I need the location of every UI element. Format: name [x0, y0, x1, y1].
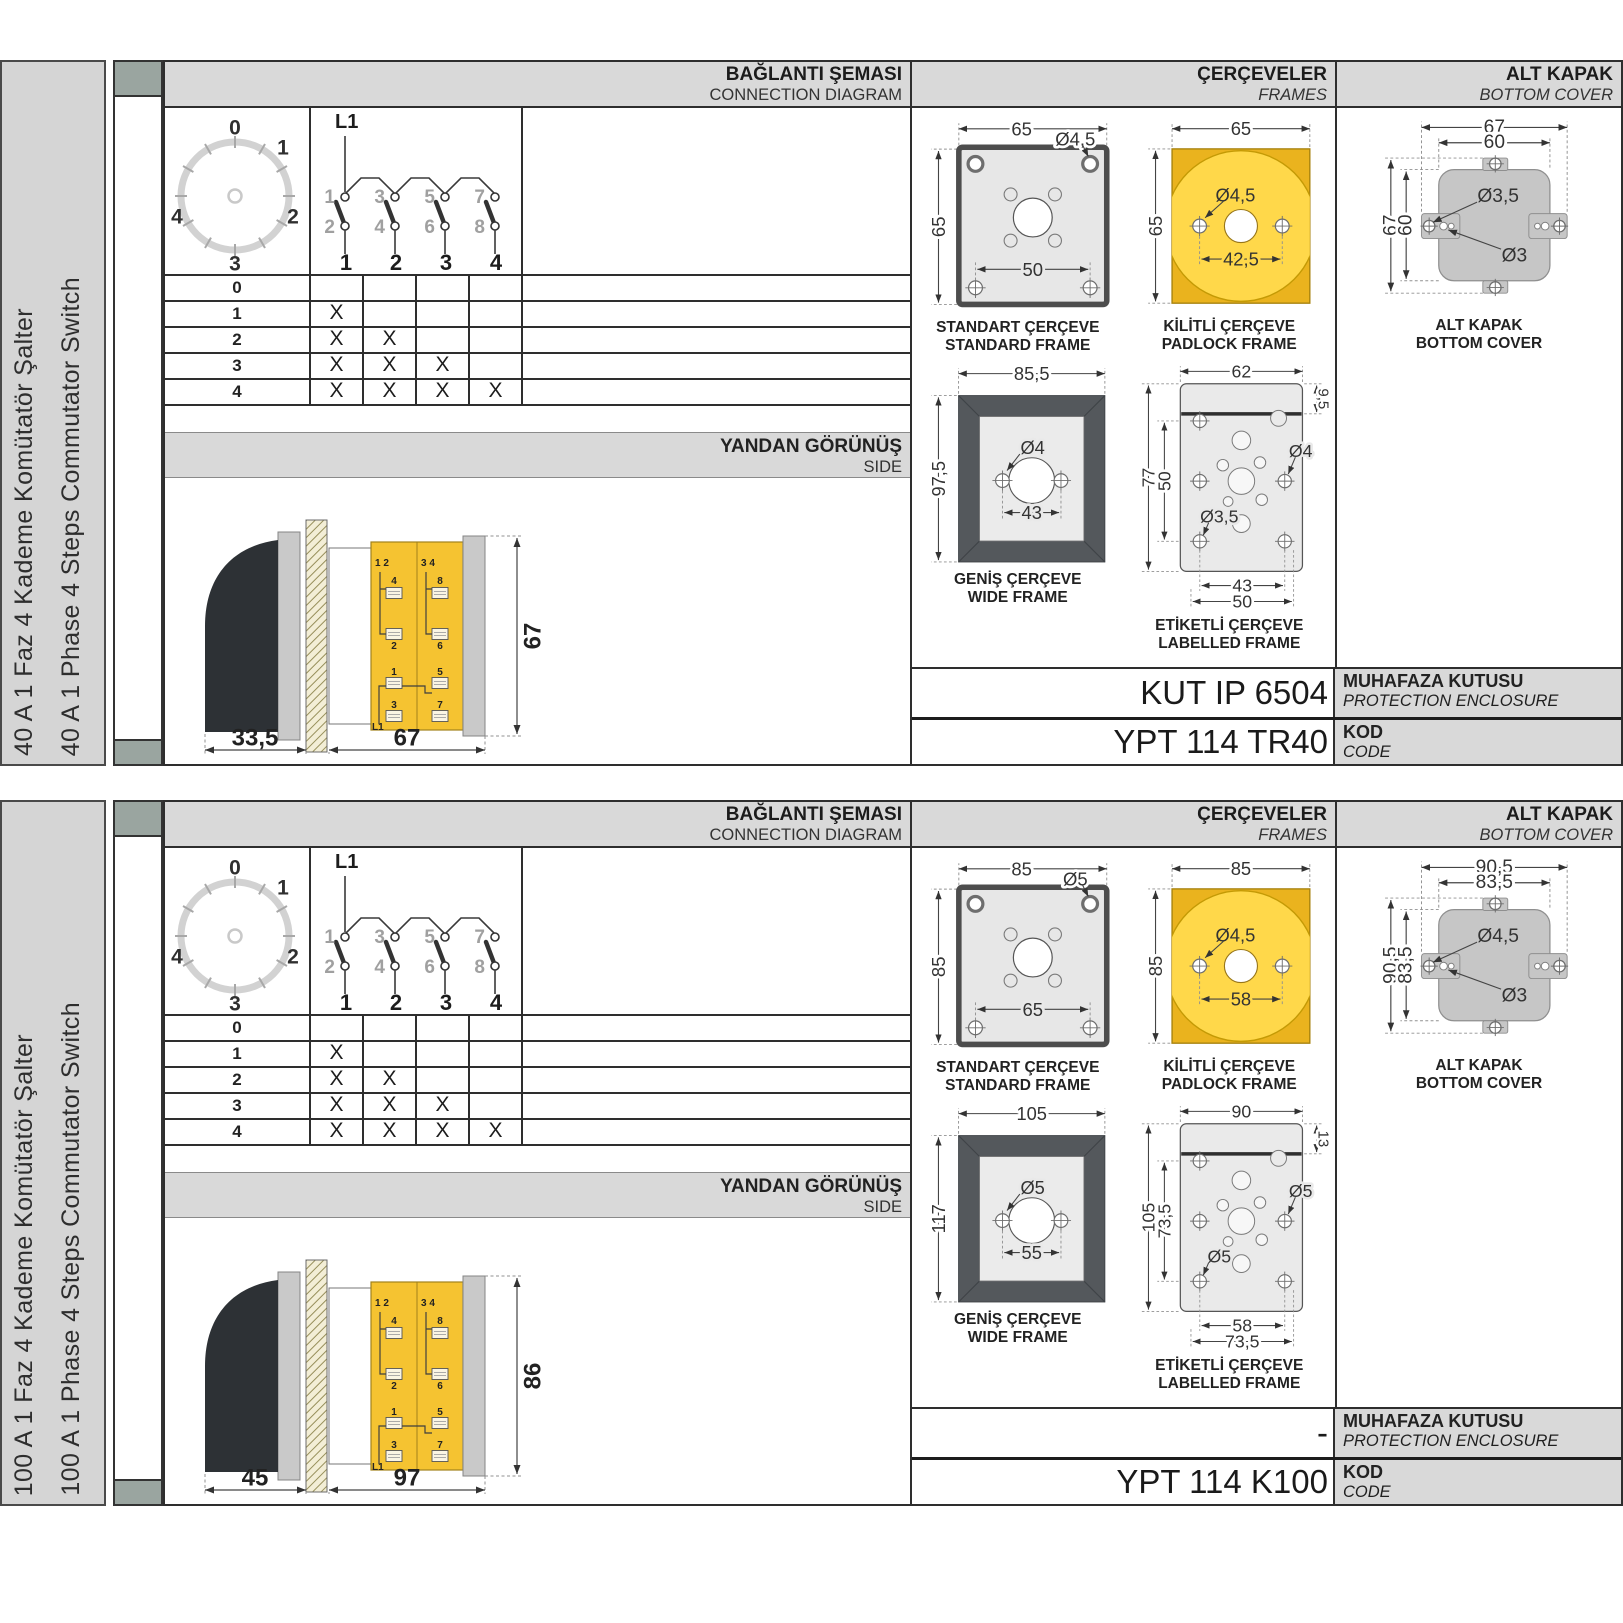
padlock-frame-caption-en: PADLOCK FRAME [1139, 1076, 1319, 1094]
contact-mark [468, 276, 521, 300]
standard-frame-figure: 85 85 Ø5 [920, 850, 1116, 1095]
contact-mark: X [415, 354, 468, 378]
contact-mark: X [309, 1042, 362, 1066]
dim-height: 85 [1145, 956, 1166, 976]
frames-header-tr: ÇERÇEVELER [912, 64, 1327, 86]
contact-mark: X [362, 354, 415, 378]
cover-header-en: BOTTOM COVER [1337, 826, 1613, 845]
dim-hole-dia: Ø4,5 [1216, 184, 1256, 205]
line-label-l1: L1 [372, 722, 384, 733]
switch-neck [329, 1288, 371, 1464]
cover-header-tr: ALT KAPAK [1337, 64, 1613, 86]
dim-width: 105 [1016, 1103, 1046, 1124]
side-view-band-en: SIDE [165, 1198, 902, 1217]
contact-mark: X [309, 354, 362, 378]
contact-diagram-figure: L1 1 3 5 7 [315, 848, 520, 1014]
contact-mark [468, 328, 521, 352]
dim-width: 85 [1231, 858, 1251, 879]
panel-main: BAĞLANTI ŞEMASI CONNECTION DIAGRAM ÇERÇE… [163, 60, 1623, 766]
code-label-tr: KOD [1343, 722, 1617, 743]
bottom-cover-header: ALT KAPAK BOTTOM COVER [1337, 802, 1621, 846]
dim-height-inner: 50 [1155, 471, 1175, 491]
rear-plate [278, 532, 300, 740]
frames-column: 85 85 Ø5 [912, 848, 1337, 1407]
dim-body-depth: 97 [394, 1465, 421, 1492]
terminal-block [386, 1418, 402, 1429]
wide-frame-caption-en: WIDE FRAME [922, 1329, 1114, 1347]
corner-hole [1082, 157, 1097, 172]
terminal-label-7: 7 [437, 1440, 443, 1451]
product-code: YPT 114 TR40 [912, 723, 1333, 761]
contact-mark [309, 1016, 362, 1040]
dim-front-depth: 33,5 [232, 725, 279, 752]
center-hole [1009, 458, 1055, 504]
code-row: YPT 114 TR40 KOD CODE [912, 717, 1621, 764]
table-row: 0 [165, 276, 910, 302]
terminal-label-1: 1 [391, 1407, 397, 1418]
labelled-frame-caption-tr: ETİKETLİ ÇERÇEVE [1129, 617, 1329, 635]
standard-frame-drawing: 85 85 Ø5 [920, 854, 1116, 1059]
contact-mark [468, 1068, 521, 1092]
bottom-cover-drawing: 90,5 83,5 90,5 83,5 [1364, 854, 1594, 1057]
center-hole [1013, 938, 1052, 977]
dial-pos-0: 0 [229, 117, 241, 140]
contact-mark: X [362, 1094, 415, 1118]
figures-row: 65 65 Ø4,5 [912, 108, 1621, 667]
spacer [165, 406, 910, 432]
product-panel: 100 A 1 Faz 4 Kademe Komütatör Şalter 10… [0, 800, 1623, 1506]
end-plate [463, 1276, 485, 1476]
terminal-block [386, 678, 402, 689]
table-row: 1X [165, 1042, 910, 1068]
terminal-label-6: 6 [437, 1381, 443, 1392]
contact-mark: X [362, 380, 415, 404]
diagram-filler [523, 848, 910, 1014]
dim-width: 85 [1011, 858, 1032, 879]
padlock-frame-caption-en: PADLOCK FRAME [1139, 336, 1319, 354]
dim-band: 13 [1315, 1130, 1330, 1147]
contact-mark: X [468, 1120, 521, 1144]
terminal-block [386, 1328, 402, 1339]
contact-mark: X [362, 1068, 415, 1092]
position-label: 4 [165, 380, 309, 404]
contact-mark: X [309, 328, 362, 352]
wide-frame-drawing: 105 117 Ø5 [922, 1099, 1114, 1311]
terminal-5: 5 [424, 927, 435, 948]
figures-row: 85 85 Ø5 [912, 848, 1621, 1407]
dial-cell: 0 1 2 3 4 [165, 848, 311, 1014]
wide-frame-caption-en: WIDE FRAME [922, 589, 1114, 607]
table-filler [521, 1120, 910, 1144]
bottom-cover-caption-tr: ALT KAPAK [1337, 1057, 1621, 1075]
contact-mark [468, 354, 521, 378]
table-filler [521, 380, 910, 404]
labelled-frame-caption-en: LABELLED FRAME [1129, 1375, 1329, 1393]
wide-frame-caption-tr: GENİŞ ÇERÇEVE [922, 571, 1114, 589]
padlock-frame-drawing: 85 85 Ø4,5 [1139, 854, 1319, 1058]
table-row: 3XXX [165, 1094, 910, 1120]
contact-mark [362, 276, 415, 300]
labelled-frame-caption-en: LABELLED FRAME [1129, 635, 1329, 653]
terminal-label-4: 4 [391, 576, 397, 587]
contact-mark [415, 1042, 468, 1066]
table-filler [521, 328, 910, 352]
bottom-cover-column: 90,5 83,5 90,5 83,5 [1337, 848, 1621, 1407]
terminal-6: 6 [424, 957, 435, 978]
position-label: 3 [165, 1094, 309, 1118]
contact-mark [468, 1016, 521, 1040]
wide-frame-figure: 105 117 Ø5 [922, 1095, 1114, 1393]
dial-pos-3: 3 [229, 253, 241, 275]
dim-pitch-2: 73,5 [1225, 1331, 1260, 1351]
bus-link [345, 178, 495, 194]
contact-mark: X [309, 380, 362, 404]
table-row: 3XXX [165, 354, 910, 380]
panel-content: 0 1 2 3 4 L1 [165, 108, 1621, 764]
section-header-row: BAĞLANTI ŞEMASI CONNECTION DIAGRAM ÇERÇE… [165, 802, 1621, 848]
terminal-8: 8 [474, 217, 485, 238]
left-title-sidebar: 100 A 1 Faz 4 Kademe Komütatör Şalter 10… [0, 800, 106, 1506]
terminal-label-3: 3 [391, 700, 397, 711]
table-row: 2XX [165, 1068, 910, 1094]
terminal-3: 3 [374, 187, 385, 208]
contact-mark: X [468, 380, 521, 404]
catalog-page: 40 A 1 Faz 4 Kademe Komütatör Şalter 40 … [0, 0, 1623, 1506]
wire-label-12: 1 2 [375, 1298, 389, 1309]
wire-label-34: 3 4 [421, 558, 435, 569]
padlock-frame-caption-tr: KİLİTLİ ÇERÇEVE [1139, 1058, 1319, 1076]
dim-hole-2: Ø3 [1502, 245, 1528, 266]
dim-width: 62 [1232, 361, 1252, 381]
standard-frame-caption-tr: STANDART ÇERÇEVE [920, 1059, 1116, 1077]
terminal-label-4: 4 [391, 1316, 397, 1327]
dim-hole-pitch: 58 [1231, 989, 1251, 1010]
table-filler [521, 276, 910, 300]
contact-mark: X [362, 1120, 415, 1144]
center-hole [1225, 950, 1258, 983]
terminal-label-2: 2 [391, 1381, 397, 1392]
contact-mark [415, 1016, 468, 1040]
spine-marker-top [115, 60, 161, 97]
side-view-area: 1 2 3 4 4 8 2 6 1 5 3 7 L1 86 [165, 1218, 910, 1504]
position-label: 2 [165, 328, 309, 352]
panel-main: BAĞLANTI ŞEMASI CONNECTION DIAGRAM ÇERÇE… [163, 800, 1623, 1506]
bottom-cover-header: ALT KAPAK BOTTOM COVER [1337, 62, 1621, 106]
terminal-4: 4 [374, 957, 385, 978]
dim-width-inner: 83,5 [1476, 872, 1513, 893]
enclosure-label-en: PROTECTION ENCLOSURE [1343, 692, 1617, 711]
bottom-cover-caption-tr: ALT KAPAK [1337, 317, 1621, 335]
terminal-5: 5 [424, 187, 435, 208]
terminal-3: 3 [374, 927, 385, 948]
dim-front-depth: 45 [242, 1465, 269, 1492]
bottom-cover-figure: 67 60 67 60 [1337, 110, 1621, 353]
terminal-label-3: 3 [391, 1440, 397, 1451]
dial-pos-2: 2 [287, 206, 299, 229]
enclosure-label: MUHAFAZA KUTUSU PROTECTION ENCLOSURE [1333, 669, 1621, 717]
diagram-row: 0 1 2 3 4 L1 [165, 108, 910, 274]
frames-header-en: FRAMES [912, 826, 1327, 845]
terminal-label-2: 2 [391, 641, 397, 652]
labelled-frame-drawing: 90 13 105 73,5 [1129, 1099, 1329, 1357]
dim-width: 65 [1011, 118, 1032, 139]
left-title-sidebar: 40 A 1 Faz 4 Kademe Komütatör Şalter 40 … [0, 60, 106, 766]
side-view-band: YANDAN GÖRÜNÜŞ SIDE [165, 1172, 910, 1218]
enclosure-label: MUHAFAZA KUTUSU PROTECTION ENCLOSURE [1333, 1409, 1621, 1457]
table-filler [521, 302, 910, 326]
enclosure-label-tr: MUHAFAZA KUTUSU [1343, 671, 1617, 692]
bottom-cover-figure: 90,5 83,5 90,5 83,5 [1337, 850, 1621, 1093]
wire-label-12: 1 2 [375, 558, 389, 569]
contact-mark [309, 276, 362, 300]
table-filler [521, 1094, 910, 1118]
corner-hole [1082, 897, 1097, 912]
dim-body-depth: 67 [394, 725, 421, 752]
dial-pos-4: 4 [171, 946, 183, 969]
contact-mark [362, 1016, 415, 1040]
dim-height: 67 [520, 623, 547, 650]
terminal-label-8: 8 [437, 1316, 443, 1327]
terminal-block [432, 588, 448, 599]
position-label: 0 [165, 276, 309, 300]
terminal-label-6: 6 [437, 641, 443, 652]
dim-hole-dia: Ø5 [1020, 1177, 1044, 1198]
terminal-block [432, 1418, 448, 1429]
terminal-label-8: 8 [437, 576, 443, 587]
frames-header: ÇERÇEVELER FRAMES [912, 62, 1337, 106]
frames-column: 65 65 Ø4,5 [912, 108, 1337, 667]
dial-cell: 0 1 2 3 4 [165, 108, 311, 274]
terminal-block [432, 1328, 448, 1339]
dial-pos-0: 0 [229, 857, 241, 880]
side-view-area: 1 2 3 4 4 8 2 6 1 5 3 7 L1 67 [165, 478, 910, 764]
dim-hole-1: Ø4,5 [1477, 926, 1519, 947]
connection-diagram-header: BAĞLANTI ŞEMASI CONNECTION DIAGRAM [165, 802, 912, 846]
enclosure-label-tr: MUHAFAZA KUTUSU [1343, 1411, 1617, 1432]
side-view-band: YANDAN GÖRÜNÜŞ SIDE [165, 432, 910, 478]
bottom-cover-caption-en: BOTTOM COVER [1337, 335, 1621, 353]
bottom-cover-column: 67 60 67 60 [1337, 108, 1621, 667]
contact-mark [362, 1042, 415, 1066]
table-row: 1X [165, 302, 910, 328]
connection-diagram-column: 0 1 2 3 4 L1 [165, 108, 912, 764]
panel-title-english: 100 A 1 Phase 4 Steps Commutator Switch [57, 1002, 86, 1496]
pole-1: 1 [339, 990, 351, 1014]
dim-height-inner: 83,5 [1396, 947, 1417, 984]
labelled-frame-caption-tr: ETİKETLİ ÇERÇEVE [1129, 1357, 1329, 1375]
spine-column [113, 800, 163, 1506]
contact-diagram-figure: L1 1 3 5 7 [315, 108, 520, 274]
terminal-block [386, 1451, 402, 1462]
table-filler [521, 354, 910, 378]
dim-hole-2: Ø3 [1502, 985, 1528, 1006]
connection-diagram-column: 0 1 2 3 4 L1 [165, 848, 912, 1504]
dim-hole-1: Ø3,5 [1477, 186, 1519, 207]
terminal-block [432, 629, 448, 640]
padlock-frame-caption-tr: KİLİTLİ ÇERÇEVE [1139, 318, 1319, 336]
dim-width-inner: 60 [1484, 132, 1505, 153]
right-section: 85 85 Ø5 [912, 848, 1621, 1504]
connection-header-en: CONNECTION DIAGRAM [165, 826, 902, 845]
wire-label-34: 3 4 [421, 1298, 435, 1309]
contact-mark: X [309, 302, 362, 326]
table-filler [521, 1068, 910, 1092]
terminal-8: 8 [474, 957, 485, 978]
center-hole [1009, 1198, 1055, 1244]
spine-marker-bottom [115, 1479, 161, 1506]
dial-pos-3: 3 [229, 993, 241, 1015]
dial-pos-2: 2 [287, 946, 299, 969]
terminal-7: 7 [474, 927, 485, 948]
panel-title-turkish: 40 A 1 Faz 4 Kademe Komütatör Şalter [10, 308, 39, 756]
diagram-row: 0 1 2 3 4 L1 [165, 848, 910, 1014]
frames-header: ÇERÇEVELER FRAMES [912, 802, 1337, 846]
code-label: KOD CODE [1333, 1460, 1621, 1504]
dim-height: 65 [928, 217, 949, 238]
dial-center [229, 930, 242, 943]
dim-width: 85,5 [1014, 363, 1050, 384]
dial-pos-4: 4 [171, 206, 183, 229]
dim-hole-small: Ø3,5 [1200, 506, 1239, 526]
dim-height: 86 [520, 1363, 547, 1390]
dim-width: 65 [1231, 118, 1251, 139]
terminal-block [432, 678, 448, 689]
pole-4: 4 [489, 990, 502, 1014]
corner-hole [968, 157, 983, 172]
bottom-cover-drawing: 67 60 67 60 [1364, 114, 1594, 317]
terminal-7: 7 [474, 187, 485, 208]
position-label: 1 [165, 302, 309, 326]
terminal-block [386, 1369, 402, 1380]
contact-mark [468, 1042, 521, 1066]
contact-mark [415, 1068, 468, 1092]
dim-height: 65 [1145, 216, 1166, 236]
dim-hole-dia: Ø4 [1020, 437, 1044, 458]
table-row: 4XXXX [165, 1120, 910, 1146]
enclosure-row: - MUHAFAZA KUTUSU PROTECTION ENCLOSURE [912, 1407, 1621, 1457]
dim-hole-dia: Ø5 [1063, 868, 1088, 889]
connection-header-tr: BAĞLANTI ŞEMASI [165, 64, 902, 86]
side-view-figure: 1 2 3 4 4 8 2 6 1 5 3 7 L1 86 [179, 1226, 649, 1494]
spine-column [113, 60, 163, 766]
connection-diagram-header: BAĞLANTI ŞEMASI CONNECTION DIAGRAM [165, 62, 912, 106]
terminal-2: 2 [324, 217, 335, 238]
product-code: YPT 114 K100 [912, 1463, 1333, 1501]
panel-content: 0 1 2 3 4 L1 [165, 848, 1621, 1504]
standard-frame-figure: 65 65 Ø4,5 [920, 110, 1116, 355]
side-view-band-en: SIDE [165, 458, 902, 477]
position-label: 2 [165, 1068, 309, 1092]
labelled-frame-figure: 62 9,5 77 50 [1129, 355, 1329, 653]
frames-header-en: FRAMES [912, 86, 1327, 105]
line-label: L1 [335, 111, 358, 133]
padlock-frame-drawing: 65 65 Ø4,5 [1139, 114, 1319, 318]
frames-header-tr: ÇERÇEVELER [912, 804, 1327, 826]
dim-hole-dia: Ø4,5 [1216, 924, 1256, 945]
pole-2: 2 [389, 990, 401, 1014]
diagram-filler [523, 108, 910, 274]
side-view-band-tr: YANDAN GÖRÜNÜŞ [165, 1176, 902, 1198]
contact-mark [415, 328, 468, 352]
terminal-block [432, 1451, 448, 1462]
side-view-figure: 1 2 3 4 4 8 2 6 1 5 3 7 L1 67 [179, 486, 649, 754]
spine-marker-bottom [115, 739, 161, 766]
pole-2: 2 [389, 250, 401, 274]
dial-pos-1: 1 [277, 137, 289, 160]
labelled-frame-drawing: 62 9,5 77 50 [1129, 359, 1329, 617]
contact-mark: X [309, 1120, 362, 1144]
table-row: 2XX [165, 328, 910, 354]
contact-diagram-cell: L1 1 3 5 7 [311, 108, 523, 274]
contact-mark [362, 302, 415, 326]
end-plate [463, 536, 485, 736]
enclosure-row: KUT IP 6504 MUHAFAZA KUTUSU PROTECTION E… [912, 667, 1621, 717]
dim-height-inner: 60 [1396, 215, 1417, 236]
contact-mark [415, 276, 468, 300]
labelled-frame-figure: 90 13 105 73,5 [1129, 1095, 1329, 1393]
terminal-6: 6 [424, 217, 435, 238]
contact-mark: X [415, 1094, 468, 1118]
terminal-1: 1 [324, 927, 335, 948]
terminal-block [432, 1369, 448, 1380]
contact-mark: X [415, 1120, 468, 1144]
position-label: 4 [165, 1120, 309, 1144]
dim-height: 85 [928, 957, 949, 978]
dim-pitch-2: 50 [1233, 591, 1253, 611]
bus-link [345, 918, 495, 934]
enclosure-code: KUT IP 6504 [912, 674, 1333, 712]
contact-mark: X [362, 328, 415, 352]
position-label: 3 [165, 354, 309, 378]
corner-hole [968, 897, 983, 912]
contact-mark: X [309, 1094, 362, 1118]
dial-pos-1: 1 [277, 877, 289, 900]
contact-mark [468, 302, 521, 326]
padlock-frame-figure: 65 65 Ø4,5 [1139, 110, 1319, 355]
terminal-block [386, 588, 402, 599]
dim-height: 117 [928, 1204, 949, 1233]
dim-hole-pitch: 50 [1022, 259, 1043, 280]
standard-frame-caption-en: STANDARD FRAME [920, 1077, 1116, 1095]
spacer [165, 1146, 910, 1172]
code-label-tr: KOD [1343, 1462, 1617, 1483]
dim-band: 9,5 [1315, 388, 1330, 409]
dim-hole-right: Ø5 [1289, 1181, 1313, 1201]
dim-hole-dia: Ø4,5 [1055, 128, 1095, 149]
mounting-panel [306, 1260, 327, 1492]
code-label-en: CODE [1343, 743, 1617, 762]
connection-header-en: CONNECTION DIAGRAM [165, 86, 902, 105]
switch-handle [205, 1280, 278, 1472]
line-label-l1: L1 [372, 1462, 384, 1473]
spine-marker-top [115, 800, 161, 837]
table-filler [521, 1042, 910, 1066]
dim-width: 90 [1232, 1101, 1252, 1121]
contact-mark [415, 302, 468, 326]
code-label: KOD CODE [1333, 720, 1621, 764]
dim-height: 97,5 [928, 461, 949, 497]
position-label: 0 [165, 1016, 309, 1040]
dim-height-inner: 73,5 [1155, 1204, 1175, 1239]
center-hole [1013, 198, 1052, 237]
enclosure-label-en: PROTECTION ENCLOSURE [1343, 1432, 1617, 1451]
panel-title-turkish: 100 A 1 Faz 4 Kademe Komütatör Şalter [10, 1034, 39, 1496]
table-row: 4XXXX [165, 380, 910, 406]
selector-dial-figure: 0 1 2 3 4 [165, 848, 309, 1014]
enclosure-code: - [912, 1414, 1333, 1452]
panel-title-english: 40 A 1 Phase 4 Steps Commutator Switch [57, 277, 86, 756]
selector-dial-figure: 0 1 2 3 4 [165, 108, 309, 274]
